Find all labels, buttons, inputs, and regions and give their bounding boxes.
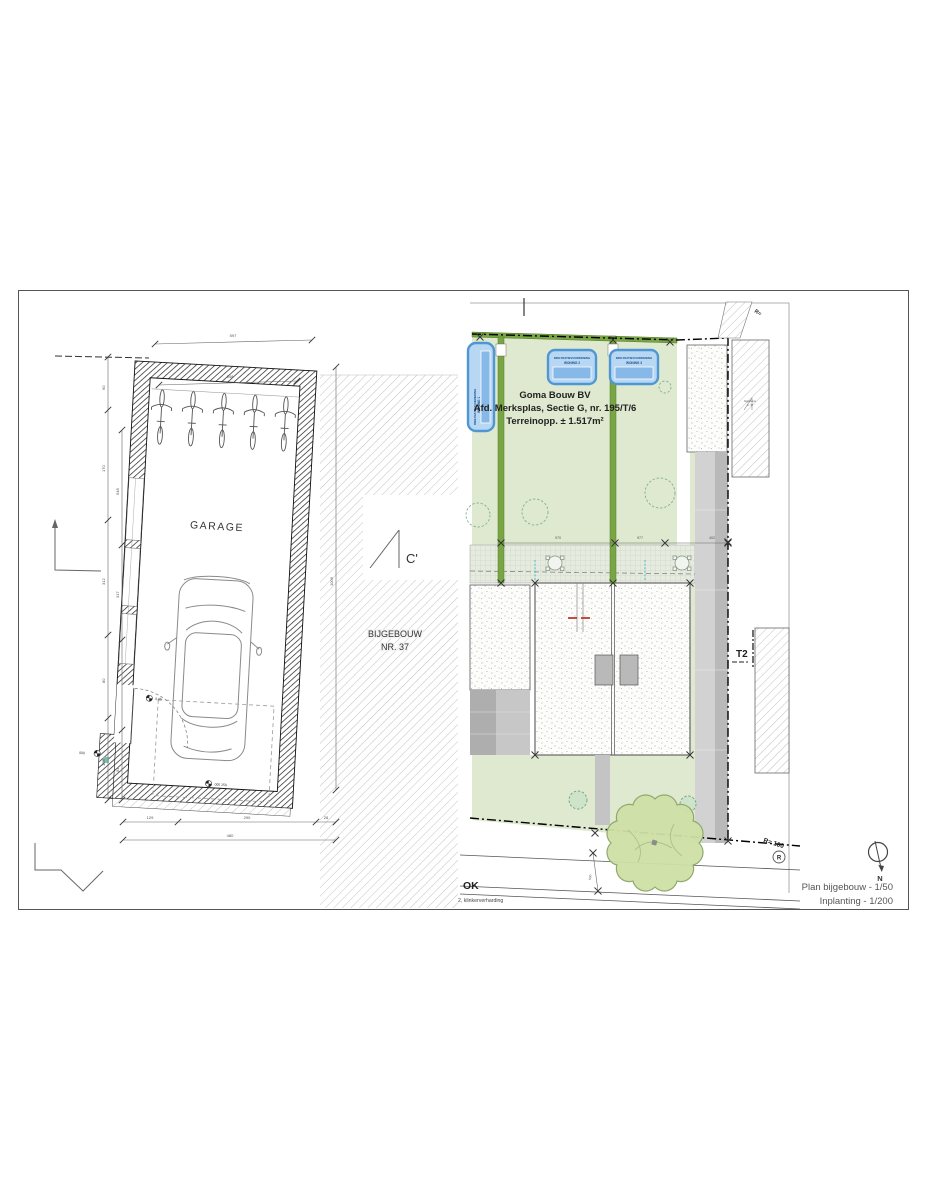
svg-text:129: 129 <box>147 815 154 820</box>
svg-text:NR. 37: NR. 37 <box>381 642 409 652</box>
svg-text:Goma Bouw BV: Goma Bouw BV <box>519 390 591 401</box>
title-inplanting: Inplanting - 1/200 <box>820 896 893 907</box>
svg-text:C': C' <box>406 551 418 566</box>
svg-text:94: 94 <box>115 767 120 772</box>
svg-text:548: 548 <box>115 488 120 495</box>
section-marker-notch <box>363 495 458 580</box>
section-marker-top-left <box>52 519 101 571</box>
svg-text:BIJGEBOUW: BIJGEBOUW <box>368 629 423 639</box>
r-edge-label: R= <box>753 309 762 318</box>
infiltration-basin-2: INFILTRATIEVOORZIENING WONING 2 <box>548 350 596 384</box>
svg-text:90: 90 <box>101 385 106 390</box>
door-opening <box>114 684 134 743</box>
svg-text:977: 977 <box>637 536 643 540</box>
svg-text:T2: T2 <box>736 649 748 660</box>
left-neighbor-house <box>470 585 530 690</box>
room-label: GARAGE <box>190 519 245 534</box>
infiltration-basin-3: INFILTRATIEVOORZIENING WONING 3 <box>610 350 658 384</box>
street-tree <box>607 795 703 891</box>
svg-text:480: 480 <box>227 833 234 838</box>
svg-text:INFILTRATIEVOORZIENING: INFILTRATIEVOORZIENING <box>554 356 590 360</box>
svg-text:170: 170 <box>101 465 106 472</box>
car-symbol <box>159 574 266 762</box>
wall-pier <box>97 734 117 799</box>
svg-text:402: 402 <box>709 536 715 540</box>
t2-marker: T2 <box>732 630 753 668</box>
scale-titles: Plan bijgebouw - 1/50 Inplanting - 1/200 <box>802 882 893 907</box>
title-plan-bijgebouw: Plan bijgebouw - 1/50 <box>802 882 893 893</box>
svg-text:970: 970 <box>555 536 561 540</box>
svg-text:290: 290 <box>244 815 251 820</box>
svg-text:500: 500 <box>588 874 592 880</box>
garage-structure: GARAGE 0.05 005 250 <box>76 359 317 816</box>
bike-rail <box>152 389 300 397</box>
paving-note: 2, klinkerverharding <box>458 898 503 904</box>
svg-text:R= 100: R= 100 <box>762 837 785 850</box>
infiltration-basin-1: INFILTRATIEVOORZIENING WONING 1 <box>468 343 494 431</box>
svg-text:548: 548 <box>227 374 234 379</box>
svg-text:312: 312 <box>101 578 106 585</box>
svg-text:090: 090 <box>79 751 85 755</box>
svg-text:317: 317 <box>115 591 120 598</box>
bicycle-symbols <box>150 389 297 451</box>
svg-text:INFILTRATIEVOORZIENING: INFILTRATIEVOORZIENING <box>616 356 652 360</box>
front-outbuilding <box>687 345 727 452</box>
svg-text:WONING 2: WONING 2 <box>564 361 580 365</box>
svg-text:005 250: 005 250 <box>214 782 227 787</box>
svg-text:0.05: 0.05 <box>155 697 162 701</box>
door-right-unit <box>620 655 638 685</box>
svg-text:28: 28 <box>324 815 329 820</box>
svg-text:R: R <box>777 856 782 862</box>
svg-text:1006: 1006 <box>329 576 334 586</box>
door-left-unit <box>595 655 613 685</box>
section-marker-bottom-left <box>35 843 103 891</box>
svg-text:nr. 37: nr. 37 <box>747 403 754 407</box>
site-plan: INFILTRATIEVOORZIENING WONING 1 INFILTRA… <box>460 290 909 910</box>
svg-text:128: 128 <box>101 759 106 766</box>
svg-text:597: 597 <box>230 333 237 338</box>
svg-text:80: 80 <box>101 678 106 683</box>
garage-floor-plan: GARAGE 0.05 005 250 <box>18 290 460 910</box>
svg-text:WONING 3: WONING 3 <box>626 361 642 365</box>
svg-text:Terreinopp. ± 1.517m²: Terreinopp. ± 1.517m² <box>506 416 603 427</box>
road-dimension: 500 <box>588 850 601 895</box>
ok-label: OK <box>463 880 479 892</box>
architectural-drawing-page: GARAGE 0.05 005 250 <box>0 0 927 1200</box>
svg-text:bijgebouw: bijgebouw <box>744 399 756 403</box>
radius-label: R= 100 R <box>762 837 785 863</box>
north-arrow-icon: N <box>869 841 888 883</box>
garden-path <box>595 755 610 825</box>
svg-text:Afd. Merksplas, Sectie G, nr.: Afd. Merksplas, Sectie G, nr. 195/T/6 <box>474 403 637 414</box>
left-wall-openings <box>119 478 144 665</box>
property-line <box>55 356 149 358</box>
